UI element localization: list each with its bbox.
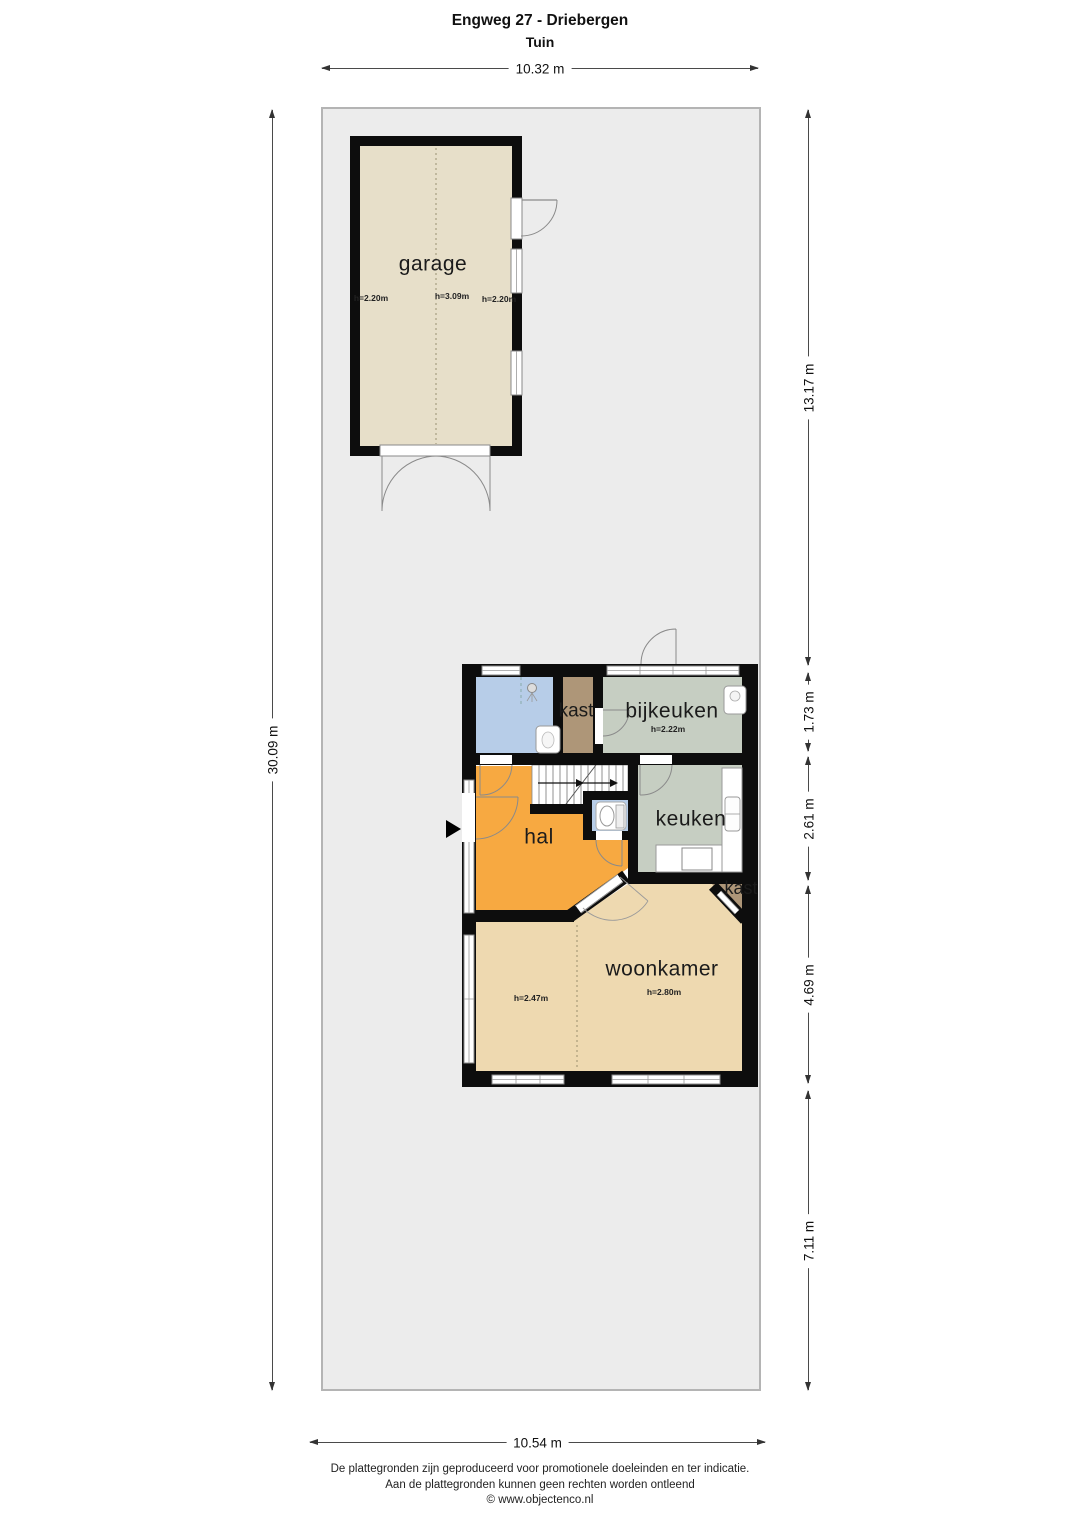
bijkeuken-height: h=2.22m [651, 725, 685, 734]
kast2-label: kast [724, 879, 757, 897]
woonkamer-label: woonkamer [605, 959, 718, 980]
garage-height-mid: h=3.09m [435, 292, 469, 301]
floorplan-drawing [0, 0, 1080, 1527]
dimension-right-1-label: 13.17 m [802, 356, 817, 419]
copyright: © www.objectenco.nl [0, 1493, 1080, 1509]
garage-height-left: h=2.20m [354, 294, 388, 303]
disclaimer-line-1: De plattegronden zijn geproduceerd voor … [0, 1462, 1080, 1478]
disclaimer-line-2: Aan de plattegronden kunnen geen rechten… [0, 1478, 1080, 1494]
washbasin-icon [536, 726, 560, 753]
keuken-label: keuken [656, 809, 727, 830]
dimension-top: 10.32 m [322, 68, 758, 69]
dimension-right-4-label: 4.69 m [802, 957, 817, 1012]
woonkamer-height-right: h=2.80m [647, 988, 681, 997]
bijkeuken-label: bijkeuken [625, 701, 718, 722]
woonkamer-height-left: h=2.47m [514, 994, 548, 1003]
arrow-up-icon [269, 109, 275, 118]
stove-icon [682, 848, 712, 870]
dimension-right-3-label: 2.61 m [802, 791, 817, 846]
dimension-top-label: 10.32 m [509, 62, 572, 77]
house-structure [446, 629, 758, 1087]
dimension-right-2: 1.73 m [808, 673, 809, 751]
hal-label: hal [524, 827, 554, 848]
dimension-bottom: 10.54 m [310, 1442, 765, 1443]
boiler-icon [724, 686, 746, 714]
dimension-right-2-label: 1.73 m [802, 684, 817, 739]
dimension-left-label: 30.09 m [266, 719, 281, 782]
dimension-right-5: 7.11 m [808, 1091, 809, 1390]
arrow-down-icon [269, 1382, 275, 1391]
garage-label: garage [399, 254, 467, 275]
garage-height-right: h=2.20m [482, 295, 516, 304]
kast1-label: kast [559, 702, 594, 721]
dimension-right-5-label: 7.11 m [802, 1213, 817, 1267]
dimension-left: 30.09 m [272, 110, 273, 1390]
dimension-right-3: 2.61 m [808, 757, 809, 880]
arrow-right-icon [750, 65, 759, 71]
arrow-left-icon [321, 65, 330, 71]
disclaimer: De plattegronden zijn geproduceerd voor … [0, 1462, 1080, 1509]
floorplan-page: Engweg 27 - Driebergen Tuin [0, 0, 1080, 1527]
dimension-right-4: 4.69 m [808, 886, 809, 1083]
dimension-right-1: 13.17 m [808, 110, 809, 665]
dimension-bottom-label: 10.54 m [506, 1436, 569, 1451]
